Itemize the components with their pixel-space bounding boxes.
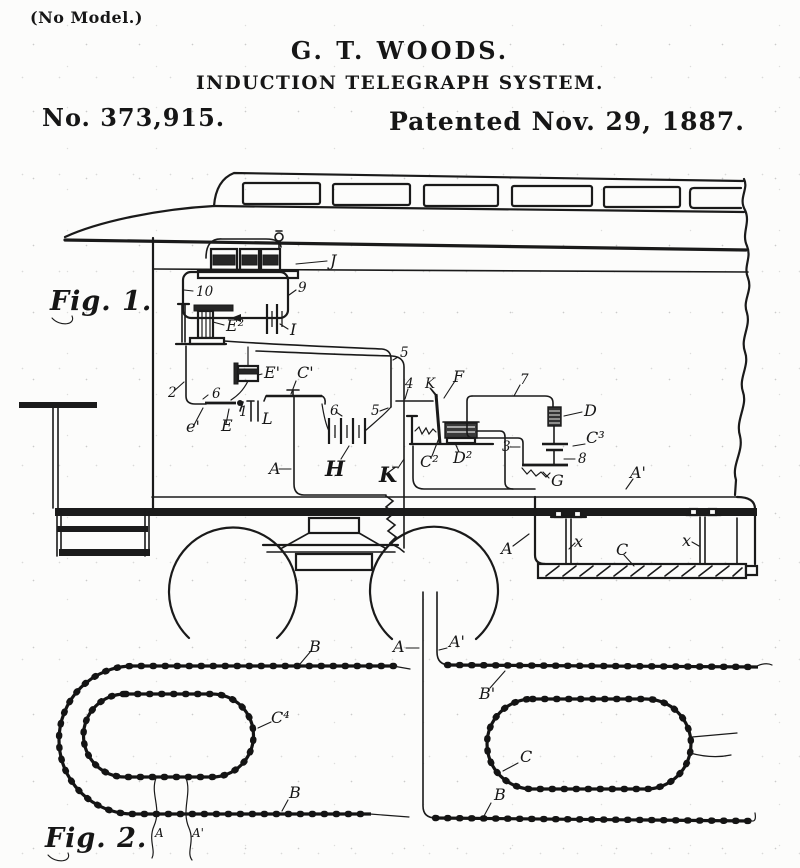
label-E: E (220, 416, 233, 435)
label-a-lead: A (154, 826, 164, 840)
label-C2: C² (420, 452, 439, 471)
fig1-wheels-truck (169, 496, 498, 818)
label-C1: C' (297, 363, 314, 382)
fig1-coil-E1 (231, 347, 258, 400)
label-x1: x (574, 532, 583, 551)
label-L: L (261, 409, 273, 428)
label-C3: C³ (586, 428, 605, 447)
patent-page: (No Model.) G. T. WOODS. INDUCTION TELEG… (0, 0, 800, 868)
fig1-electromagnet-E2 (176, 304, 233, 344)
label-B1: B' (478, 684, 495, 703)
label-B-bottomleft: B (288, 783, 301, 802)
fig1-contact-lever-group (186, 346, 386, 495)
label-K-big: K (378, 462, 398, 487)
label-a1-lead: A' (191, 826, 204, 840)
label-e1: e' (186, 417, 200, 436)
label-D: D (583, 401, 597, 420)
fig1-telegraph-key (407, 389, 493, 444)
label-5a: 5 (400, 345, 409, 361)
fig1-caption: Fig. 1. (49, 286, 152, 317)
label-A: A (267, 459, 281, 478)
patent-drawing: J 10 9 I E² 2 6 e' E 1 L E' C' 6 H 5 5 4… (0, 0, 800, 868)
label-C-plate: C (616, 540, 628, 559)
fig2-caption-group: Fig. 2. (44, 823, 147, 861)
label-B-bottomright: B (493, 785, 506, 804)
label-J: J (327, 251, 338, 270)
label-6b: 6 (330, 403, 339, 419)
label-E1: E' (263, 363, 280, 382)
label-x2: x (682, 531, 691, 550)
label-10: 10 (196, 284, 214, 300)
label-K-small: K (424, 376, 436, 392)
label-B-topleft: B (308, 637, 321, 656)
label-8: 8 (578, 451, 587, 467)
fig1-receiver-box7 (467, 396, 568, 477)
label-7: 7 (520, 372, 529, 388)
label-G: G (551, 471, 564, 490)
label-H: H (324, 456, 346, 481)
label-A-under: A (499, 539, 513, 558)
fig1-end-platform-steps (19, 402, 150, 556)
label-5b: 5 (371, 403, 380, 419)
fig2-caption: Fig. 2. (44, 823, 147, 854)
fig1-caption-group: Fig. 1. (49, 286, 152, 324)
label-1: 1 (239, 404, 248, 420)
label-F: F (452, 367, 465, 386)
label-C-loop: C (520, 747, 532, 766)
label-3: 3 (502, 439, 511, 455)
label-C4: C⁴ (271, 708, 290, 727)
fig2-track-coils (59, 664, 772, 860)
label-6a: 6 (212, 386, 221, 402)
label-E2: E² (225, 316, 244, 335)
label-4: 4 (404, 376, 414, 392)
label-2: 2 (167, 385, 177, 401)
label-9: 9 (298, 280, 307, 296)
label-D2: D² (452, 448, 472, 467)
label-A-wire: A (391, 637, 405, 656)
label-A1-wire: A' (447, 632, 465, 651)
label-A1: A' (628, 463, 646, 482)
label-I: I (289, 320, 297, 339)
